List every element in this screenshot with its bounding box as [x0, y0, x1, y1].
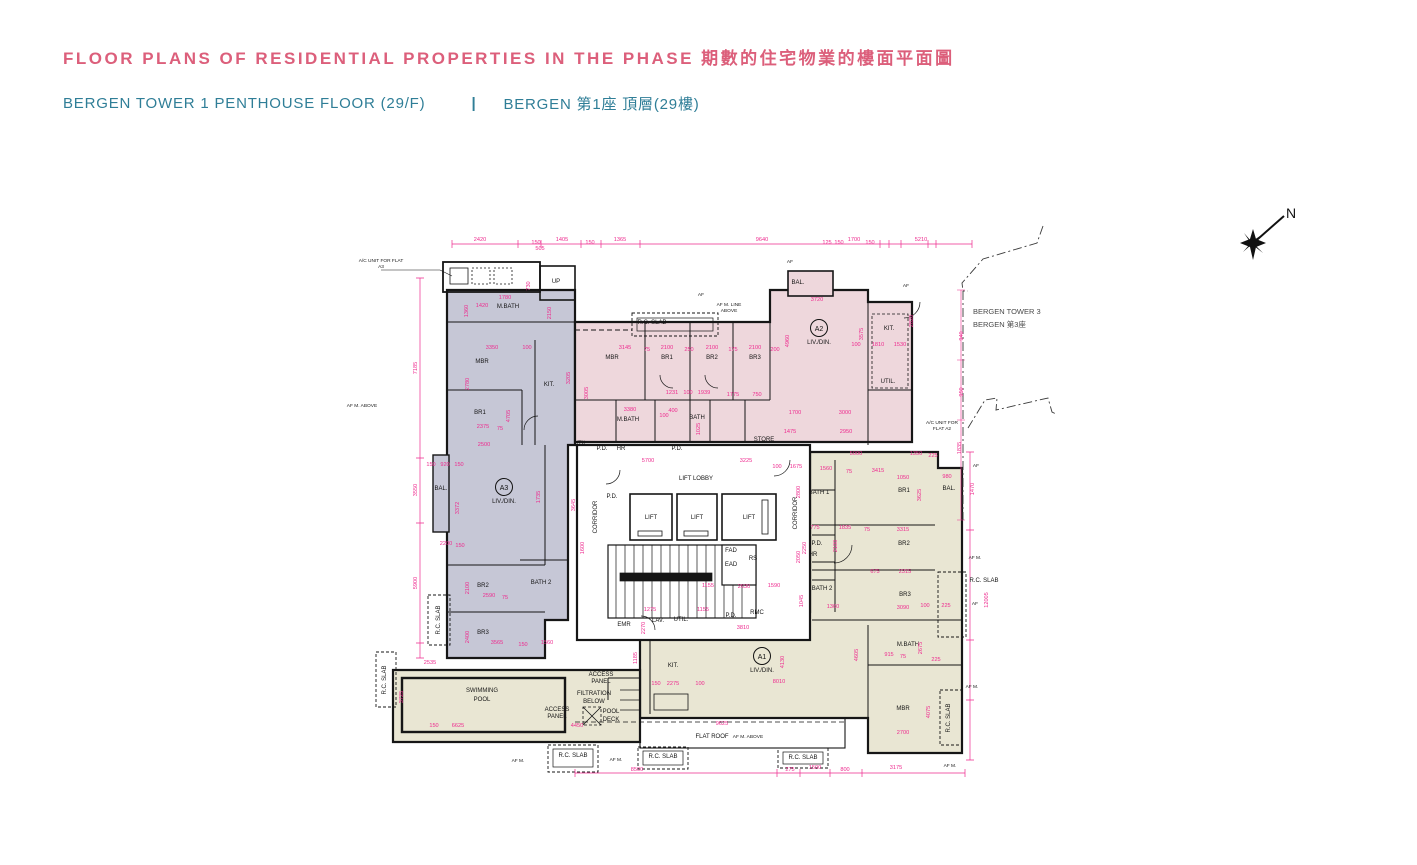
dim-label: 5700 [642, 458, 654, 464]
dim-label: 915 [884, 652, 893, 658]
dim-label: 1475 [784, 429, 796, 435]
dim-label: 5900 [413, 577, 419, 589]
room-label: UTIL. [674, 617, 689, 623]
dim-label: 3372 [455, 502, 461, 514]
room-label: BR3 [899, 592, 911, 598]
dim-label: 225 [931, 657, 940, 663]
dim-label: 4705 [506, 410, 512, 422]
dim-label: 200 [770, 347, 779, 353]
room-label: BR3 [477, 630, 489, 636]
call-label: ABOVE [721, 308, 738, 314]
dim-label: 3315 [897, 527, 909, 533]
dim-label: 2100 [706, 345, 718, 351]
dim-label: 2100 [465, 582, 471, 594]
dim-label: 6625 [452, 723, 464, 729]
room-label: R.C. SLAB [946, 703, 952, 732]
room-label: BATH [689, 415, 705, 421]
dim-label: 1780 [499, 295, 511, 301]
dim-label: 2400 [465, 631, 471, 643]
room-label: BAL. [434, 486, 447, 492]
room-label: LIV./DIN. [492, 499, 516, 505]
floor-plan-drawing: BERGEN TOWER 3 BERGEN 第3座 N MBRBR1KIT.M.… [0, 0, 1417, 865]
dim-label: 4960 [785, 335, 791, 347]
dim-label: 2100 [661, 345, 673, 351]
room-label: BATH 2 [812, 586, 833, 592]
dim-label: 3380 [624, 407, 636, 413]
room-label: HR [617, 446, 626, 452]
dim-label: 2800 [796, 486, 802, 498]
call-label: A/C UNIT FOR [926, 420, 958, 426]
dim-label: 2050 [796, 551, 802, 563]
dim-label: 150 [454, 462, 463, 468]
badge-label: A1 [758, 654, 767, 661]
north-compass: N [1240, 205, 1296, 260]
call-label: AF M. [512, 758, 525, 764]
dim-label: 775 [810, 525, 819, 531]
room-label: POOL [603, 709, 620, 715]
dim-label: 3565 [491, 640, 503, 646]
dim-label: 150 [429, 723, 438, 729]
call-label: AF [903, 283, 909, 289]
dim-label: 150 [585, 240, 594, 246]
room-label: R.C. SLAB [648, 754, 677, 760]
dim-label: 1675 [790, 464, 802, 470]
dim-label: 730 [526, 281, 532, 290]
dim-label: 1470 [970, 483, 976, 495]
room-label: STORE [754, 437, 775, 443]
dim-label: 1590 [768, 583, 780, 589]
room-label: MBR [896, 706, 910, 712]
dim-label: 1360 [464, 305, 470, 317]
room-label: CORRIDOR [793, 496, 799, 529]
room-label: P.D. [812, 541, 823, 547]
room-label: MBR [605, 355, 619, 361]
floor-plan-page: FLOOR PLANS OF RESIDENTIAL PROPERTIES IN… [0, 0, 1417, 865]
dim-label: 250 [684, 347, 693, 353]
dim-label: 3625 [917, 489, 923, 501]
dim-label: 2820 [909, 315, 915, 327]
room-label: M.BATH [617, 417, 639, 423]
room-label: ACCESS [545, 707, 570, 713]
room-label: BATH 1 [809, 490, 830, 496]
dim-label: 1155 [702, 583, 714, 589]
dim-label: 8500 [631, 767, 643, 773]
dim-label: 1045 [799, 595, 805, 607]
room-label: ACCESS [589, 672, 614, 678]
dim-label: 2100 [833, 540, 839, 552]
neighbor-tower-label-zh: BERGEN 第3座 [973, 319, 1026, 329]
dim-label: 1835 [839, 525, 851, 531]
dim-label: 100 [920, 603, 929, 609]
dim-label: 1735 [536, 491, 542, 503]
room-label: KIT. [668, 663, 679, 669]
dim-label: 3810 [737, 625, 749, 631]
room-label: EMR [617, 622, 631, 628]
room-label: FILTRATION [577, 691, 611, 697]
dim-label: 4130 [780, 656, 786, 668]
dim-label: 100 [683, 390, 692, 396]
dim-label: 1275 [644, 607, 656, 613]
dim-label: 2250 [802, 542, 808, 554]
dim-label: 1420 [476, 303, 488, 309]
room-label: BAL. [942, 486, 955, 492]
dim-label: 1185 [633, 652, 639, 664]
dim-label: 150 [834, 240, 843, 246]
call-label: AF M. ABOVE [733, 734, 763, 740]
dim-label: 1050 [897, 475, 909, 481]
dim-label: 3000 [839, 410, 851, 416]
dim-label: 3090 [897, 605, 909, 611]
room-label: BR3 [749, 355, 761, 361]
room-label: M.BATH [497, 304, 519, 310]
dim-label: 225 [928, 453, 937, 459]
room-label: LIV./DIN. [807, 340, 831, 346]
dim-label: 4605 [854, 649, 860, 661]
dim-label: 3720 [811, 297, 823, 303]
room-label: BR1 [661, 355, 673, 361]
room-label: RMC [750, 610, 764, 616]
dim-label: 950 [959, 387, 965, 396]
call-label: AF M. ABOVE [347, 403, 377, 409]
dim-label: 1835 [957, 442, 963, 454]
dim-label: 2420 [474, 237, 486, 243]
room-label: R.C. SLAB [969, 578, 998, 584]
dim-label: 150 [651, 681, 660, 687]
room-label: SWIMMING [466, 688, 498, 694]
dim-label: 8010 [773, 679, 785, 685]
dim-label: 225 [941, 603, 950, 609]
dim-label: 7185 [413, 362, 419, 374]
dim-label: 3645 [571, 499, 577, 511]
room-label: BELOW [583, 699, 605, 705]
dim-label: 2500 [478, 442, 490, 448]
room-label: UTIL. [574, 441, 589, 447]
room-label: LIFT [645, 515, 658, 521]
room-label: R.C. SLAB [436, 605, 442, 634]
dim-label: 750 [752, 392, 761, 398]
dim-label: 100 [772, 464, 781, 470]
room-label: LIV./DIN. [750, 668, 774, 674]
dim-label: 2950 [840, 429, 852, 435]
dim-label: 4450 [571, 723, 583, 729]
room-label: BR2 [477, 583, 489, 589]
dim-label: 75 [502, 595, 508, 601]
dim-label: 675 [870, 569, 879, 575]
north-label: N [1286, 205, 1296, 221]
dim-label: 2700 [897, 730, 909, 736]
dim-label: 3415 [872, 468, 884, 474]
dim-label: 3005 [584, 387, 590, 399]
dim-label: 3175 [890, 765, 902, 771]
dim-label: 1231 [666, 390, 678, 396]
dim-label: 150 [455, 543, 464, 549]
room-label: POOL [474, 697, 491, 703]
dim-label: 2150 [547, 307, 553, 319]
dim-label: 1530 [894, 342, 906, 348]
dim-label: 150 [865, 240, 874, 246]
unit-a3-area [447, 290, 575, 658]
dim-label: 2200 [440, 541, 452, 547]
room-label: R.C. SLAB [382, 665, 388, 694]
room-label: LIFT LOBBY [679, 476, 713, 482]
dim-label: 100 [851, 342, 860, 348]
dim-label: 1600 [580, 542, 586, 554]
dim-label: 5210 [915, 237, 927, 243]
dim-label: 1700 [789, 410, 801, 416]
room-label: R.C. SLAB [558, 753, 587, 759]
room-label: BR2 [706, 355, 718, 361]
room-label: UP [552, 279, 560, 285]
call-label: AF [973, 463, 979, 469]
call-label: AF M. LINE [717, 302, 742, 308]
dim-label: 100 [659, 413, 668, 419]
dim-label: 75 [644, 347, 650, 353]
room-label: UTIL. [881, 379, 896, 385]
dim-label: 75 [900, 654, 906, 660]
call-label: A3 [378, 264, 384, 270]
dim-label: 980 [942, 474, 951, 480]
dim-label: 3575 [859, 328, 865, 340]
dim-label: 1365 [614, 237, 626, 243]
call-label: AF M. [610, 757, 623, 763]
room-label: FLAT ROOF [695, 734, 728, 740]
neighbor-tower-outline [962, 226, 1056, 520]
room-label: BR1 [474, 410, 486, 416]
dim-label: 2590 [483, 593, 495, 599]
dim-label: 2100 [749, 345, 761, 351]
room-label: R.C. SLAB [637, 320, 666, 326]
dim-label: 505 [535, 246, 544, 252]
dim-label: 1025 [696, 423, 702, 435]
dim-label: 2270 [641, 622, 647, 634]
dim-label: 2630 [738, 584, 750, 590]
room-label: P.D. [597, 446, 608, 452]
room-label: KIT. [884, 326, 895, 332]
dim-label: 1939 [698, 390, 710, 396]
dim-label: 125 [822, 240, 831, 246]
dim-label: 1560 [820, 466, 832, 472]
dim-label: 9640 [756, 237, 768, 243]
room-label: RS [749, 556, 757, 562]
badge-label: A2 [815, 326, 824, 333]
call-label: AF [787, 259, 793, 265]
call-label: AF [972, 601, 978, 607]
dim-label: 1155 [697, 607, 709, 613]
dim-label: 1775 [727, 392, 739, 398]
dim-label: 9625 [716, 721, 728, 727]
call-label: A/C UNIT FOR FLAT [359, 258, 404, 264]
call-label: AF M. [944, 763, 957, 769]
dim-label: 400 [668, 408, 677, 414]
room-label: P.D. [607, 494, 618, 500]
dim-label: 1810 [872, 342, 884, 348]
dim-label: 2315 [899, 569, 911, 575]
dim-label: 940 [959, 331, 965, 340]
dim-label: 4075 [926, 706, 932, 718]
dim-label: 1500 [809, 765, 821, 771]
dim-label: 100 [522, 345, 531, 351]
dim-label: 3145 [619, 345, 631, 351]
room-label: M.BATH [897, 642, 919, 648]
room-label: LIFT [691, 515, 704, 521]
dim-label: 75 [497, 426, 503, 432]
room-label: CORRIDOR [593, 500, 599, 533]
dim-label: 5000 [850, 451, 862, 457]
dim-label: 150 [426, 462, 435, 468]
room-label: HR [809, 552, 818, 558]
room-label: P.D. [726, 613, 737, 619]
room-label: FAD [725, 548, 737, 554]
call-label: AF M. [966, 684, 979, 690]
room-label: PANEL [591, 679, 611, 685]
dim-label: 275 [785, 767, 794, 773]
room-label: KIT. [544, 382, 555, 388]
dim-label: 150 [518, 642, 527, 648]
dim-label: 3350 [486, 345, 498, 351]
compass-star-icon [1240, 229, 1266, 260]
dim-label: 3725 [399, 691, 405, 703]
dim-label: 1405 [556, 237, 568, 243]
core [577, 445, 810, 640]
room-label: LIFT [743, 515, 756, 521]
dim-label: 75 [864, 527, 870, 533]
room-label: BR1 [898, 488, 910, 494]
dim-label: 75 [846, 469, 852, 475]
room-label: MBR [475, 359, 489, 365]
room-label: BATH 2 [531, 580, 552, 586]
dim-label: 1700 [848, 237, 860, 243]
room-label: DECK [603, 717, 620, 723]
dim-label: 1560 [541, 640, 553, 646]
dim-label: 2535 [424, 660, 436, 666]
call-label: FLAT A2 [933, 426, 952, 432]
dim-label: 1360 [827, 604, 839, 610]
dim-label: 800 [840, 767, 849, 773]
room-label: P.D. [672, 446, 683, 452]
room-label: R.C. SLAB [788, 755, 817, 761]
room-label: LAV. [652, 618, 664, 624]
room-label: BAL. [791, 280, 804, 286]
call-label: AF M. [969, 555, 982, 561]
badge-label: A3 [500, 485, 509, 492]
dim-label: 3550 [413, 484, 419, 496]
dim-label: 1350 [910, 451, 922, 457]
dim-label: 175 [728, 347, 737, 353]
dim-label: 2780 [465, 378, 471, 390]
dim-label: 3205 [566, 372, 572, 384]
dim-label: 2375 [477, 424, 489, 430]
neighbor-tower-label-en: BERGEN TOWER 3 [973, 307, 1041, 316]
dim-label: 920 [440, 462, 449, 468]
dim-label: 3225 [740, 458, 752, 464]
dim-label: 100 [695, 681, 704, 687]
room-label: BR2 [898, 541, 910, 547]
dim-label: 2275 [667, 681, 679, 687]
room-label: PANEL [547, 714, 567, 720]
dim-label: 12005 [984, 592, 990, 608]
call-label: AF [698, 292, 704, 298]
dim-label: 2675 [918, 642, 924, 654]
room-label: EAD [725, 562, 738, 568]
